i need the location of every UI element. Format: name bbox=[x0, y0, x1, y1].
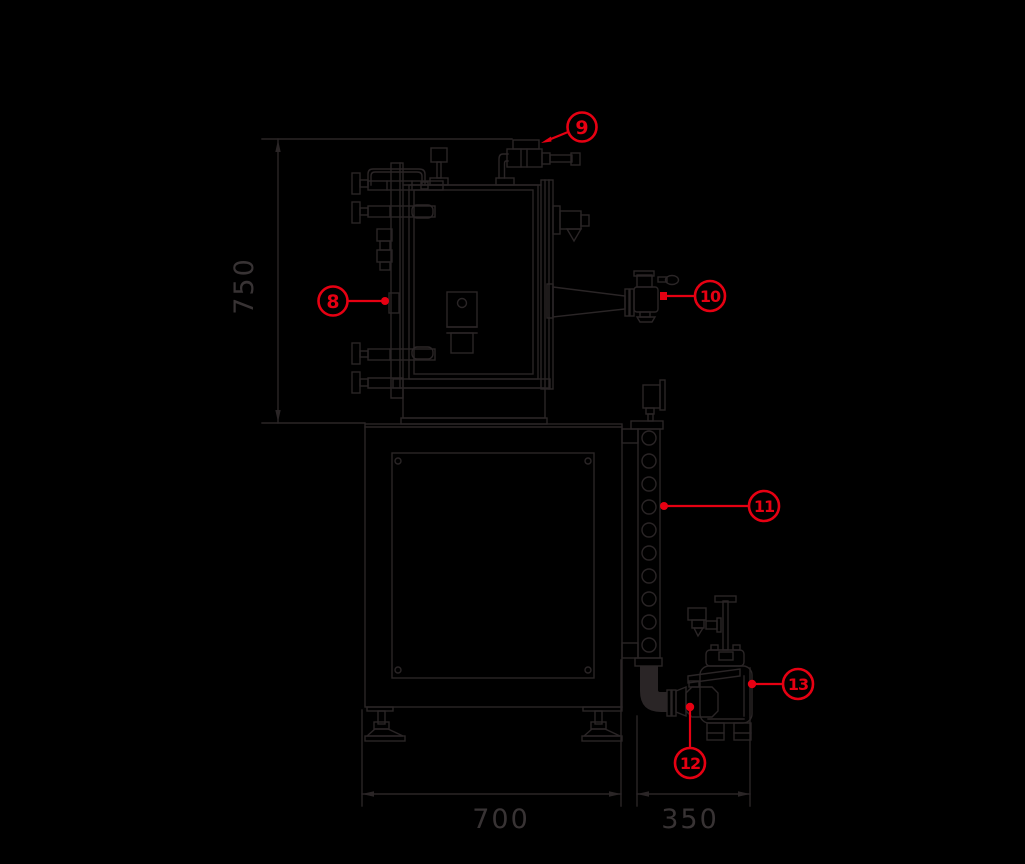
chamber-interior-fitting bbox=[447, 292, 477, 353]
right-foot bbox=[582, 707, 622, 741]
top-valve-cap bbox=[513, 140, 539, 149]
column-top-gauge bbox=[643, 380, 665, 421]
callout-10: 10 bbox=[660, 281, 725, 311]
column-holes bbox=[642, 431, 656, 652]
top-valve-assembly bbox=[496, 140, 580, 185]
callout-13-label: 13 bbox=[788, 675, 808, 694]
left-foot bbox=[365, 707, 405, 741]
pedestal bbox=[403, 388, 545, 418]
dim-350-label: 350 bbox=[661, 804, 719, 835]
side-port-valve-assembly bbox=[547, 271, 679, 322]
callout-8-dot bbox=[381, 297, 389, 305]
callout-8: 8 bbox=[319, 287, 390, 316]
lower-bracket bbox=[622, 643, 638, 658]
perforated-column-assembly bbox=[622, 380, 665, 666]
perforated-column bbox=[638, 429, 660, 658]
pump-top-valve bbox=[688, 608, 721, 636]
callout-12-dot bbox=[686, 703, 694, 711]
callout-11: 11 bbox=[660, 491, 779, 521]
side-valve-body bbox=[634, 287, 658, 312]
pump-stem bbox=[723, 601, 728, 650]
technical-diagram: 750 700 350 8 9 10 11 bbox=[0, 0, 1025, 864]
callout-10-dot bbox=[660, 292, 667, 300]
callout-9-label: 9 bbox=[575, 117, 588, 139]
dim-750-label: 750 bbox=[229, 257, 260, 315]
clamp-top-2 bbox=[352, 202, 435, 223]
vessel-bottom-rim bbox=[393, 379, 550, 388]
callout-11-label: 11 bbox=[754, 497, 775, 516]
upper-bracket bbox=[622, 429, 638, 443]
callout-8-label: 8 bbox=[326, 291, 339, 313]
vacuum-pump bbox=[688, 596, 752, 740]
inlet-elbow bbox=[640, 666, 667, 712]
panel-screw bbox=[395, 458, 401, 464]
diagram-canvas: 750 700 350 8 9 10 11 bbox=[0, 0, 1025, 864]
callout-13-dot bbox=[748, 680, 756, 688]
panel-screw bbox=[395, 667, 401, 673]
callout-9-arrow bbox=[541, 137, 552, 144]
callout-13: 13 bbox=[748, 669, 813, 699]
panel-screw bbox=[585, 458, 591, 464]
callout-11-dot bbox=[660, 502, 668, 510]
cabinet-panel bbox=[392, 453, 594, 678]
clamp-bottom-1 bbox=[352, 343, 435, 364]
cabinet-body bbox=[365, 424, 622, 707]
pump-feet bbox=[707, 723, 751, 740]
clamp-bottom-2 bbox=[352, 372, 403, 398]
callout-12-label: 12 bbox=[680, 754, 700, 773]
door-hinge-column bbox=[391, 163, 403, 388]
callout-9: 9 bbox=[541, 113, 597, 144]
door-clamps bbox=[352, 173, 443, 398]
leveling-feet bbox=[365, 707, 622, 741]
cabinet bbox=[365, 424, 622, 707]
lid-post bbox=[430, 148, 448, 185]
dim-700-label: 700 bbox=[472, 804, 530, 835]
reducer-cone bbox=[553, 287, 625, 317]
dimension-700: 700 bbox=[362, 660, 621, 835]
panel-screw bbox=[585, 667, 591, 673]
side-fitting bbox=[553, 206, 589, 241]
callout-10-label: 10 bbox=[700, 287, 721, 306]
top-valve-handle bbox=[550, 155, 572, 162]
